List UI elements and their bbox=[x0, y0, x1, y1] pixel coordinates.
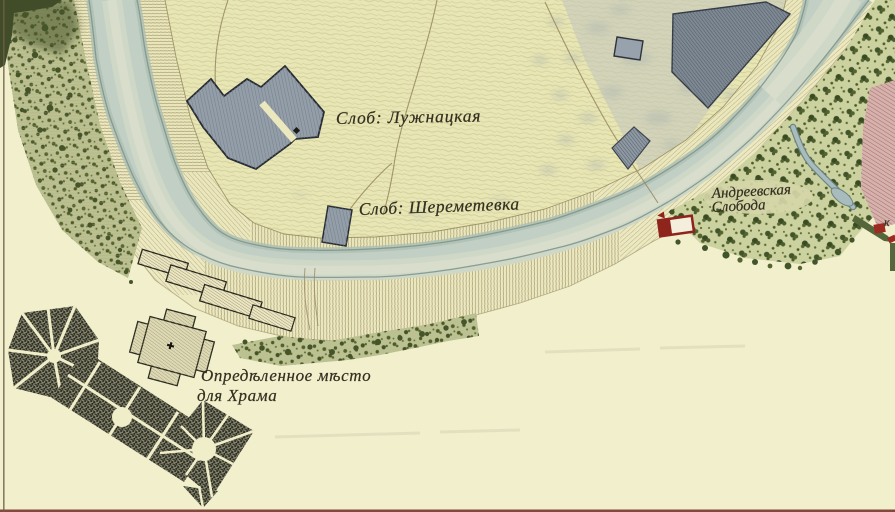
svg-text:к: к bbox=[884, 215, 890, 229]
svg-text:Слобода: Слобода bbox=[711, 197, 766, 216]
svg-text:Слоб: Лужнацкая: Слоб: Лужнацкая bbox=[336, 105, 482, 128]
svg-text:для Храма: для Храма bbox=[197, 386, 277, 405]
svg-text:Опредѣленное мѣсто: Опредѣленное мѣсто bbox=[201, 366, 371, 385]
